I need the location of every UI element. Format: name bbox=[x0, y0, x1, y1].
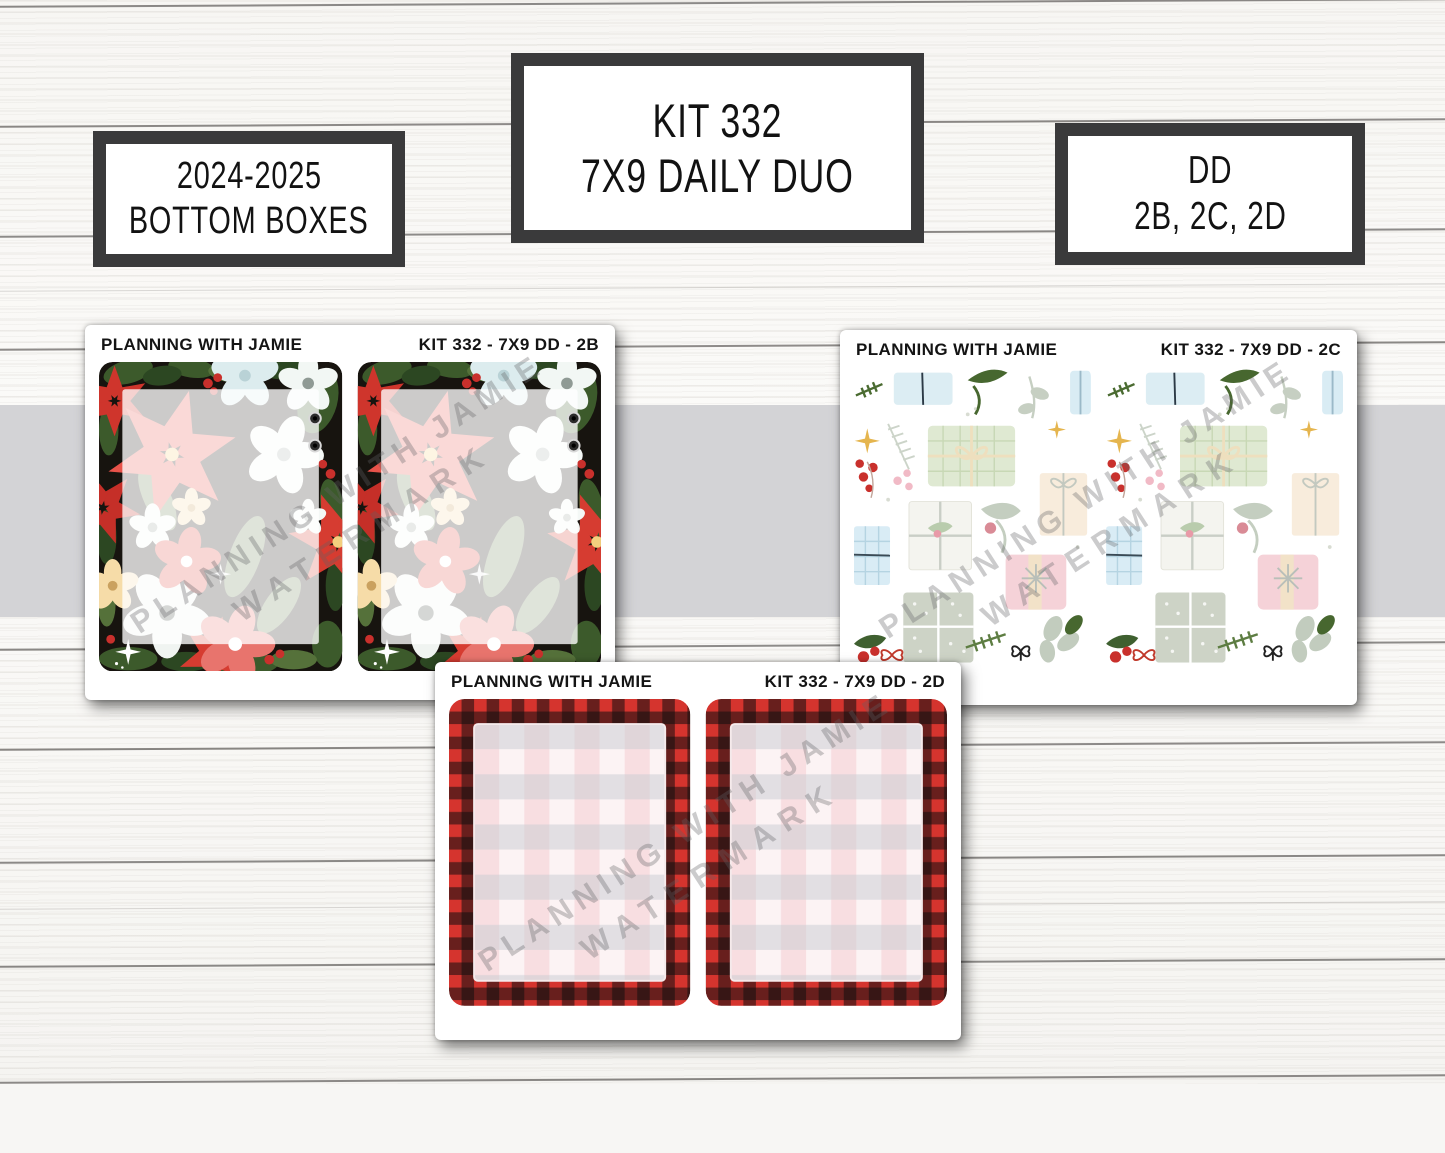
plaid-boxes-art bbox=[449, 699, 947, 1006]
kit-code: KIT 332 - 7X9 DD - 2D bbox=[765, 672, 945, 692]
kit-code: KIT 332 - 7X9 DD - 2B bbox=[419, 335, 599, 355]
label-box-variants: DD 2B, 2C, 2D bbox=[1055, 123, 1365, 265]
label-text: DD bbox=[1188, 148, 1232, 194]
brand-name: PLANNING WITH JAMIE bbox=[856, 340, 1057, 360]
brand-name: PLANNING WITH JAMIE bbox=[101, 335, 302, 355]
label-text: KIT 332 bbox=[653, 93, 783, 148]
kit-code: KIT 332 - 7X9 DD - 2C bbox=[1161, 340, 1341, 360]
label-text: 2024-2025 bbox=[177, 154, 322, 199]
label-text: BOTTOM BOXES bbox=[129, 199, 369, 244]
sticker-sheet-2c: PLANNING WITH JAMIE KIT 332 - 7X9 DD - 2… bbox=[840, 330, 1357, 705]
label-box-kit-title: KIT 332 7X9 DAILY DUO bbox=[511, 53, 924, 243]
label-text: 7X9 DAILY DUO bbox=[581, 148, 854, 203]
label-text: 2B, 2C, 2D bbox=[1134, 194, 1287, 240]
floral-boxes-art bbox=[99, 362, 601, 671]
sticker-sheet-2d: PLANNING WITH JAMIE KIT 332 - 7X9 DD - 2… bbox=[435, 662, 961, 1040]
gift-pattern-boxes-art bbox=[854, 367, 1343, 663]
brand-name: PLANNING WITH JAMIE bbox=[451, 672, 652, 692]
label-box-bottom-boxes: 2024-2025 BOTTOM BOXES bbox=[93, 131, 405, 267]
sticker-sheet-2b: PLANNING WITH JAMIE KIT 332 - 7X9 DD - 2… bbox=[85, 325, 615, 700]
